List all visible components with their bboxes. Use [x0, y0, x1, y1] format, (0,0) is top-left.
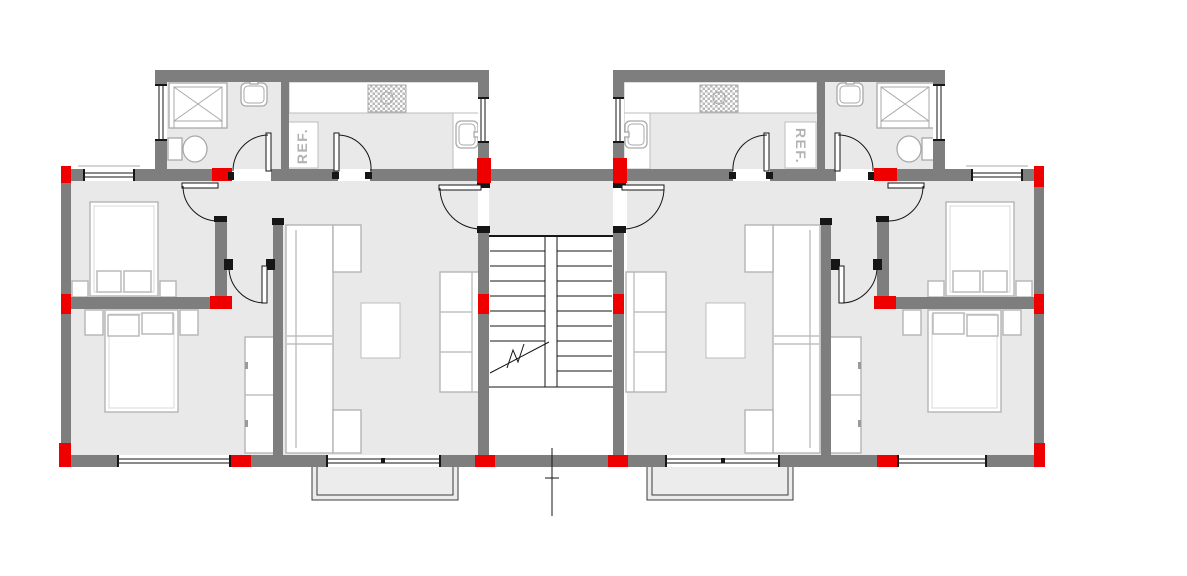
- window-jamb: [229, 455, 231, 467]
- fridge-label-left: REF.: [294, 128, 310, 164]
- door-leaf-bath-left: [266, 133, 271, 171]
- sofa-right-chaise-bottom: [745, 410, 773, 453]
- door-jamb: [729, 172, 736, 179]
- nightstand-1-left-a: [72, 281, 88, 297]
- door-leaf-bed2-left: [262, 266, 267, 303]
- nightstand-2-left-a: [85, 310, 103, 335]
- door-leaf-kitchen-left: [334, 133, 339, 171]
- sofa-2-left: [440, 272, 480, 392]
- wall-main-lobby: [491, 169, 613, 181]
- slider-mid-mark: [721, 458, 725, 463]
- wall-bottom: [71, 455, 117, 467]
- window-jamb: [133, 169, 135, 181]
- wall-stair-left-mid: [478, 228, 489, 294]
- window-kitchen-right: [613, 97, 624, 143]
- wall-cap: [272, 218, 284, 225]
- wall-main: [627, 169, 733, 181]
- window-jamb: [1021, 169, 1023, 181]
- window-kitchen-left: [478, 97, 489, 143]
- wall-stair-right-low: [613, 314, 624, 455]
- window-bed2-right: [897, 455, 987, 467]
- window-jamb: [985, 455, 987, 467]
- wardrobe-right-handle-b: [858, 420, 861, 427]
- window-jamb: [155, 139, 167, 141]
- window-jamb: [478, 141, 489, 143]
- window-jamb: [971, 169, 973, 181]
- sofa-left-chaise-top: [333, 225, 361, 272]
- slider-mid-mark: [381, 458, 385, 463]
- nightstand-1-right-a: [928, 281, 944, 297]
- sofa-right-body: [773, 225, 820, 453]
- bed-1-left-pillow-a: [97, 271, 121, 292]
- wall-top-block-left: [155, 70, 489, 82]
- wall-living-right: [821, 225, 831, 455]
- sofa-left-chaise-bottom: [333, 410, 361, 453]
- window-jamb: [439, 455, 441, 467]
- door-jamb: [365, 172, 372, 179]
- window-bed1-right: [971, 169, 1023, 181]
- window-jamb: [778, 455, 780, 467]
- door-jamb: [332, 172, 339, 179]
- balcony-left: [312, 462, 458, 500]
- sofa-2-right: [626, 272, 666, 392]
- door-jamb: [868, 172, 874, 180]
- lobby-floor: [489, 181, 613, 236]
- wardrobe-right-handle-a: [858, 362, 861, 369]
- window-bath-left: [155, 84, 167, 141]
- column: [608, 455, 628, 467]
- coffee-table-left: [361, 303, 400, 358]
- window-jamb: [933, 84, 945, 86]
- column: [1034, 443, 1045, 467]
- nightstand-1-left-b: [160, 281, 176, 297]
- column: [231, 455, 251, 467]
- door-leaf-bed2-right: [839, 266, 844, 303]
- window-jamb: [613, 141, 624, 143]
- wall-cap: [477, 226, 490, 233]
- window-jamb: [155, 84, 167, 86]
- wardrobe-left-handle-b: [245, 420, 248, 427]
- column: [1034, 166, 1044, 187]
- wardrobe-left-handle-a: [245, 362, 248, 369]
- wall-bottom: [251, 455, 326, 467]
- nightstand-1-right-b: [1016, 281, 1032, 297]
- nightstand-2-right-b: [1003, 310, 1021, 335]
- door-leaf-bath-right: [835, 133, 840, 171]
- floor-plan: REF.REF.: [0, 0, 1187, 576]
- wall-stair-left-low: [478, 314, 489, 455]
- stove-right: [700, 85, 738, 112]
- column: [61, 294, 71, 314]
- sofa-left-body: [286, 225, 333, 453]
- wall-kitchen-bath-divider-right: [817, 82, 825, 169]
- door-leaf-bed1-right: [888, 183, 924, 188]
- window-jamb: [665, 455, 667, 467]
- bed-2-left-pillow-a: [108, 315, 139, 336]
- door-leaf-entry-right: [622, 185, 664, 190]
- door-stop: [224, 259, 233, 270]
- door-leaf-entry-left: [439, 185, 481, 190]
- column: [613, 294, 624, 314]
- column: [874, 168, 897, 181]
- wall-main: [770, 169, 836, 181]
- window-bed2-left: [117, 455, 231, 467]
- column: [613, 158, 627, 183]
- wall-main: [271, 169, 338, 181]
- wall-cap: [613, 226, 626, 233]
- column: [477, 158, 491, 183]
- window-jamb: [613, 97, 624, 99]
- wall-bath-kitchen-divider-left: [281, 82, 289, 169]
- bed-1-left-pillow-b: [124, 271, 151, 292]
- sofa-right-chaise-top: [745, 225, 773, 272]
- column: [210, 296, 232, 309]
- wall-top-block-right: [613, 70, 945, 82]
- wall-main: [897, 169, 971, 181]
- coffee-table-right: [706, 303, 745, 358]
- wall-bottom: [780, 455, 877, 467]
- column: [61, 166, 71, 183]
- toilet-left-tank: [168, 138, 182, 160]
- column: [877, 455, 897, 467]
- window-jamb: [83, 169, 85, 181]
- window-bed1-left: [83, 169, 135, 181]
- bed-2-right-pillow-a: [933, 313, 964, 334]
- bed-1-right-pillow-a: [953, 271, 980, 292]
- column: [478, 294, 489, 314]
- balcony-right: [647, 462, 793, 500]
- nightstand-2-left-b: [180, 310, 198, 335]
- wall-bedroom-divider-left: [61, 297, 210, 309]
- wall-stair-right-mid: [613, 228, 624, 294]
- bed-2-left-pillow-b: [142, 313, 173, 334]
- wall-cap: [876, 216, 889, 222]
- wall-outer-right: [1034, 181, 1044, 455]
- fridge-label-right: REF.: [793, 128, 809, 164]
- wall-bottom: [441, 455, 475, 467]
- window-jamb: [478, 97, 489, 99]
- window-jamb: [933, 139, 945, 141]
- column: [475, 455, 495, 467]
- window-jamb: [897, 455, 899, 467]
- toilet-left-bowl: [183, 136, 207, 162]
- wall-main: [370, 169, 477, 181]
- window-jamb: [117, 455, 119, 467]
- column: [59, 443, 71, 467]
- door-jamb: [766, 172, 773, 179]
- door-leaf-bed1-left: [182, 183, 218, 188]
- window-bath-right: [933, 84, 945, 141]
- door-stop: [873, 259, 882, 270]
- window-jamb: [326, 455, 328, 467]
- toilet-right-bowl: [897, 136, 921, 162]
- plan-shapes: REF.REF.: [59, 70, 1045, 516]
- floor-plan-canvas: REF.REF.: [0, 0, 1187, 576]
- door-jamb: [228, 172, 234, 180]
- wall-bottom: [987, 455, 1034, 467]
- wall-bedroom-divider-right: [896, 297, 1034, 309]
- wall-outer-left: [61, 181, 71, 455]
- wall-bottom: [628, 455, 665, 467]
- door-leaf-kitchen-right: [764, 133, 769, 171]
- column: [874, 296, 896, 309]
- bed-2-right-pillow-b: [967, 315, 998, 336]
- stove-left: [368, 85, 406, 112]
- nightstand-2-right-a: [903, 310, 921, 335]
- bed-1-right-pillow-b: [983, 271, 1007, 292]
- wall-main: [1023, 169, 1034, 181]
- wall-cap: [820, 218, 832, 225]
- column: [1034, 294, 1044, 314]
